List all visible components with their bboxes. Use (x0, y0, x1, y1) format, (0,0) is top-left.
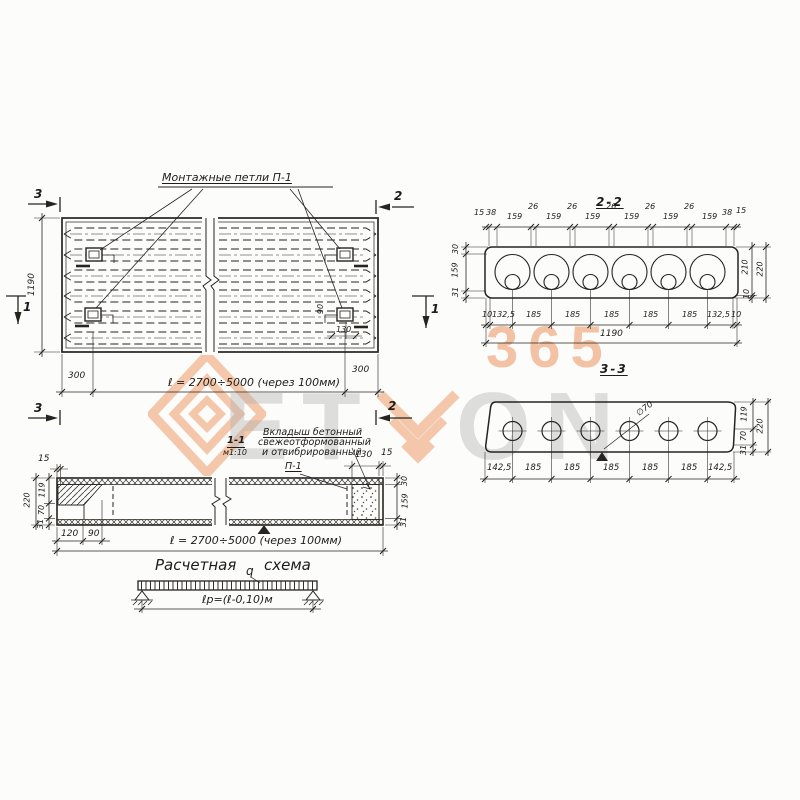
section-3-3-title: 3-3 (600, 363, 628, 375)
dim-s22-left-1: 159 (452, 262, 460, 277)
dim-s11-left-1: 70 (38, 505, 46, 515)
dim-plan-300-right: 300 (352, 366, 369, 375)
blueprint-canvas: ET ON 365 (0, 0, 800, 800)
dim-s22-right-220: 220 (757, 261, 765, 276)
dim-s22-right-210: 210 (742, 259, 750, 274)
mounting-loops (85, 248, 353, 321)
dim-s22-top-2: 159 (507, 213, 522, 221)
dim-s11-90: 90 (88, 530, 99, 539)
plan-marker-2-top: 2 (394, 190, 402, 202)
dim-s33-right-1: 70 (740, 431, 748, 441)
dim-s22-top-11: 26 (684, 203, 694, 211)
dim-s22-left-2: 31 (452, 287, 460, 297)
scheme-title-part2: схема (264, 558, 311, 573)
dim-s11-120: 120 (61, 530, 78, 539)
dim-s22-bottom-7: 132,5 (707, 311, 730, 319)
s11-note-line3: и отвибрированный (262, 448, 362, 458)
dim-s22-top-8: 159 (624, 213, 639, 221)
dim-s22-bottom-1: 132,5 (492, 311, 515, 319)
dim-s22-top-6: 159 (585, 213, 600, 221)
dim-s33-bottom-2: 185 (564, 464, 580, 473)
section-1-1-scale: м1:10 (223, 449, 247, 457)
dim-s11-left-0: 119 (39, 482, 47, 497)
plan-marker-3-bottom: 3 (34, 402, 42, 414)
dim-s22-top-14: 15 (736, 207, 746, 215)
plan-view-drawing (6, 187, 434, 425)
dim-s22-bottom-2: 185 (526, 311, 541, 319)
dim-s11-top-15: 15 (381, 449, 392, 458)
dim-s22-left-0: 30 (452, 244, 460, 254)
dim-s22-top-3: 26 (528, 203, 538, 211)
dim-s22-bottom-4: 185 (604, 311, 619, 319)
dim-s22-bottom-5: 185 (643, 311, 658, 319)
dim-s22-top-10: 159 (663, 213, 678, 221)
dim-plan-loop-130: 130 (336, 326, 351, 334)
dim-s22-top-12: 159 (702, 213, 717, 221)
scheme-title-part1: Расчетная (155, 558, 236, 573)
plan-marker-1-right: 1 (431, 303, 439, 315)
dim-s11-right-0: 30 (401, 476, 409, 486)
dim-s33-bottom-5: 185 (681, 464, 697, 473)
dim-s22-top-0: 15 (474, 209, 484, 217)
dim-s22-top-1: 38 (486, 209, 496, 217)
dim-s33-bottom-6: 142,5 (708, 464, 732, 473)
dim-s11-right-1: 159 (402, 493, 410, 508)
plan-marker-2-bottom: 2 (388, 400, 396, 412)
dim-s22-total: 1190 (600, 330, 623, 339)
dim-s33-right-2: 31 (740, 445, 748, 455)
dim-plan-length: ℓ = 2700÷5000 (через 100мм) (168, 377, 340, 388)
dim-s11-left-220: 220 (24, 492, 32, 507)
dim-s22-bottom-3: 185 (565, 311, 580, 319)
dim-s22-top-5: 26 (567, 203, 577, 211)
dim-s22-top-4: 159 (546, 213, 561, 221)
dim-s22-bottom-6: 185 (682, 311, 697, 319)
dim-s11-length: ℓ = 2700÷5000 (через 100мм) (170, 535, 342, 546)
section-1-1-title: 1-1 (227, 436, 245, 448)
dim-s22-bottom-8: 10 (731, 311, 741, 319)
dim-plan-loop-90: 90 (317, 304, 325, 314)
dim-s22-bottom-0: 10 (482, 311, 492, 319)
dim-s11-top-130: 130 (355, 451, 372, 460)
scheme-span-dim: ℓр=(ℓ-0,10)м (202, 594, 273, 605)
dim-s22-top-13: 38 (722, 209, 732, 217)
plan-marker-1-left: 1 (23, 301, 31, 313)
drawing-lines (0, 0, 800, 800)
plan-loops-label: Монтажные петли П-1 (162, 172, 292, 183)
dim-s33-right-total: 220 (757, 418, 765, 433)
dim-plan-height: 1190 (28, 273, 37, 296)
plan-marker-3-top: 3 (34, 188, 42, 200)
dim-s33-bottom-1: 185 (525, 464, 541, 473)
dim-s33-bottom-3: 185 (603, 464, 619, 473)
dim-s22-right-10: 10 (743, 289, 751, 299)
dim-s33-bottom-0: 142,5 (487, 464, 511, 473)
dim-s22-top-9: 26 (645, 203, 655, 211)
scheme-load-label: q (246, 565, 254, 577)
dim-s22-top-7: 26 (606, 203, 616, 211)
dim-plan-300-left: 300 (68, 372, 85, 381)
dim-s11-left-2: 31 (37, 519, 45, 529)
s11-loop-label: П-1 (285, 462, 302, 472)
dim-s33-bottom-4: 185 (642, 464, 658, 473)
dim-s11-topleft-15: 15 (38, 455, 49, 464)
dim-s11-right-2: 31 (400, 517, 408, 527)
dim-s33-right-0: 119 (741, 406, 749, 421)
